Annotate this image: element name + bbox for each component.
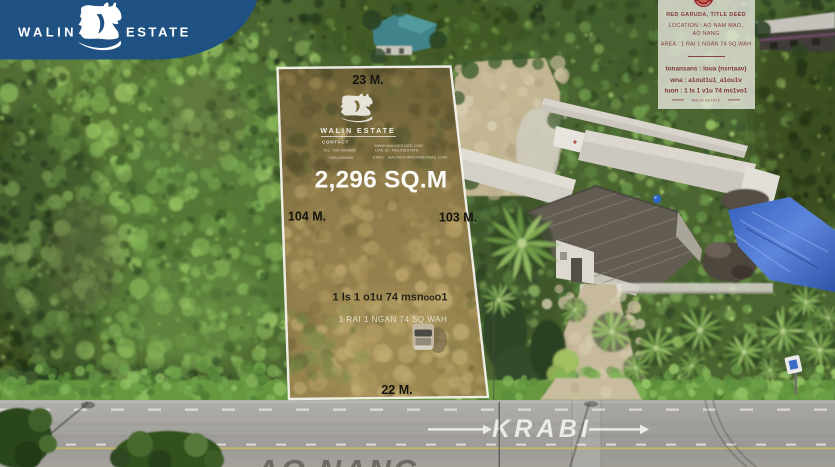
svg-text:AO NANG.: AO NANG. [255,453,431,467]
svg-text:104 M.: 104 M. [288,210,326,224]
svg-text:103 M.: 103 M. [439,211,477,225]
svg-text:2,296 SQ.M: 2,296 SQ.M [315,167,448,194]
svg-text:AREA : 1 RAI 1 NGAN 74 SQ.WAH: AREA : 1 RAI 1 NGAN 74 SQ.WAH [661,42,751,48]
svg-text:ESTATE: ESTATE [126,25,191,40]
svg-text:WALIN ESTATE: WALIN ESTATE [692,99,721,103]
svg-text:tonansans : loua (nsntaav): tonansans : loua (nsntaav) [666,66,747,73]
svg-text:+085-8355559: +085-8355559 [328,155,353,160]
svg-text:LINE ID : WALINESTATE: LINE ID : WALINESTATE [375,148,419,153]
svg-text:TEL : 099-9644693: TEL : 099-9644693 [323,148,356,153]
svg-text:22 M.: 22 M. [381,383,412,397]
svg-text:wna : a1out1u1_a1ou1v: wna : a1out1u1_a1ou1v [669,77,742,84]
svg-text:LOCATION : AO NAM MAO,: LOCATION : AO NAM MAO, [669,23,744,29]
svg-text:AO NANG: AO NANG [693,31,720,37]
svg-text:CONTACT: CONTACT [322,140,349,145]
svg-text:1 RAI 1 NGAN 74 SQ.WAH: 1 RAI 1 NGAN 74 SQ.WAH [339,315,448,324]
svg-text:1 ls 1 o1u 74 msnooo1: 1 ls 1 o1u 74 msnooo1 [333,292,448,304]
svg-text:WALIN ESTATE: WALIN ESTATE [320,126,395,135]
svg-text:23 M.: 23 M. [352,73,383,87]
svg-text:WALIN: WALIN [18,25,77,40]
svg-text:RED GARUDA, TITLE DEED: RED GARUDA, TITLE DEED [666,12,746,18]
svg-text:KRABI: KRABI [492,415,592,443]
svg-text:EMAIL : WALINESTATE008@GMAIL.C: EMAIL : WALINESTATE008@GMAIL.COM [373,155,447,160]
svg-text:tuon : 1 ls 1 v1u 74 ms1vo1: tuon : 1 ls 1 v1u 74 ms1vo1 [665,88,748,95]
